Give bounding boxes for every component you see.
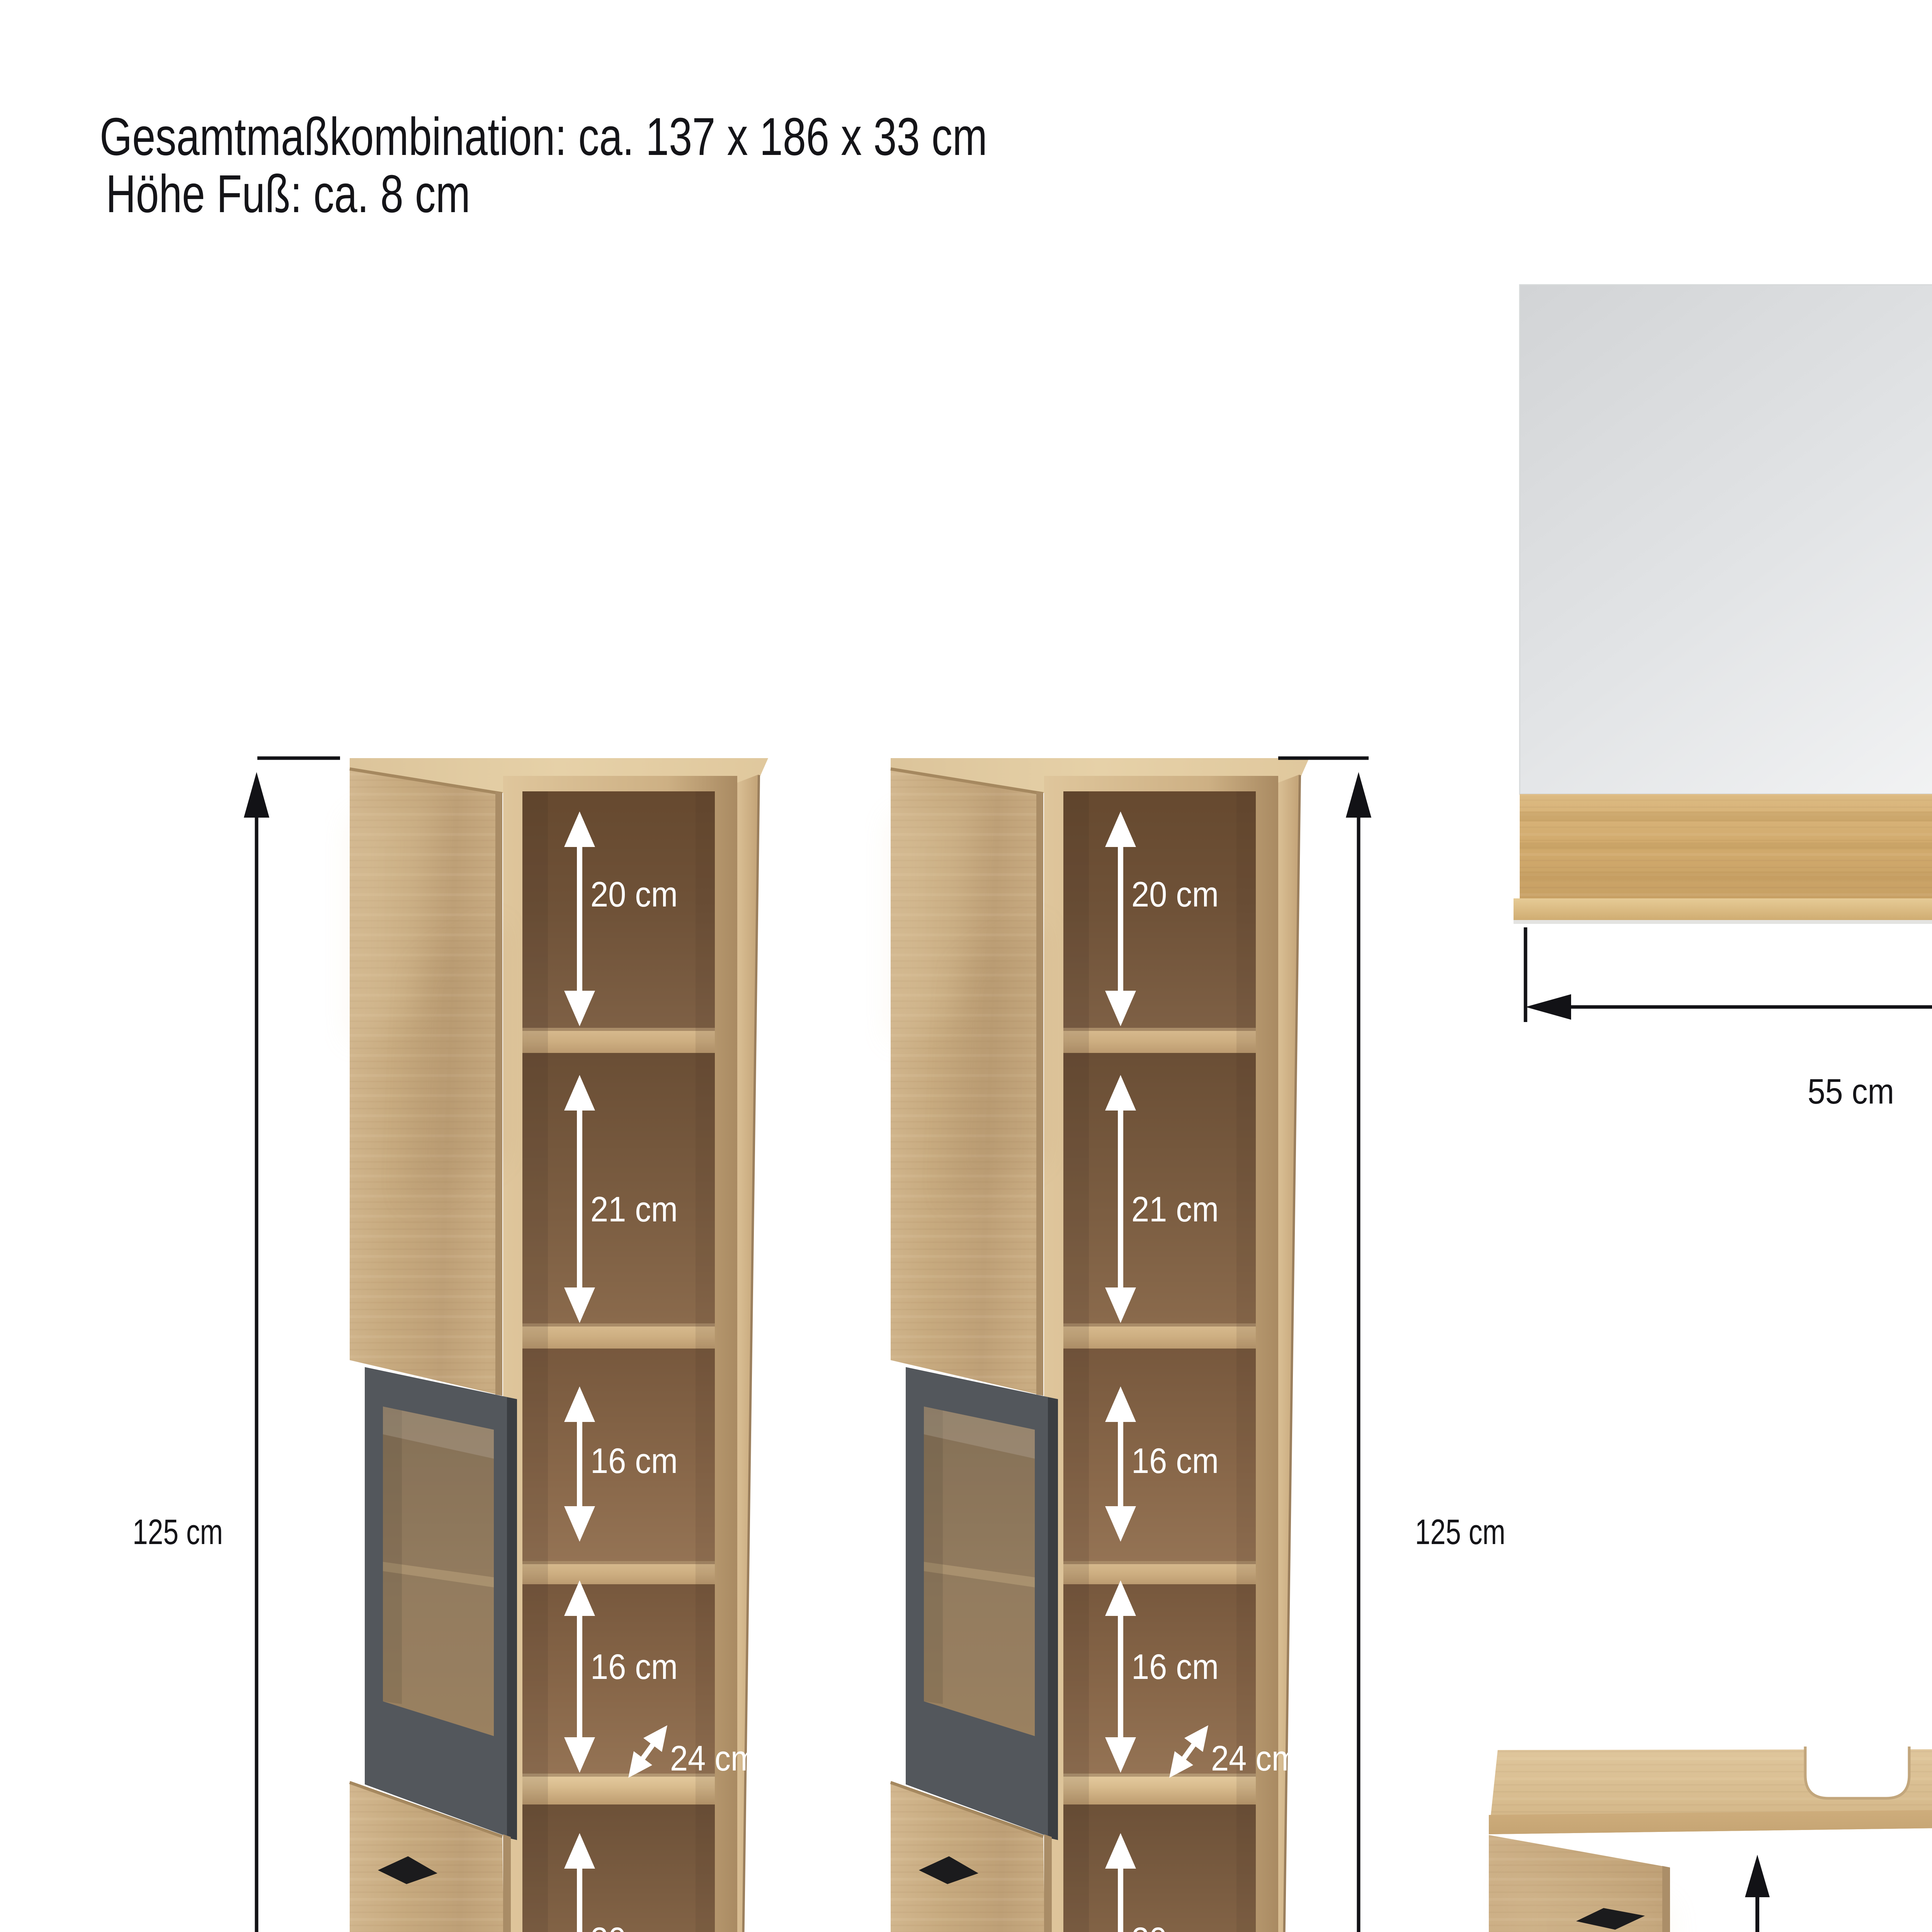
svg-text:125 cm: 125 cm [1415, 1512, 1505, 1552]
svg-text:24 cm: 24 cm [670, 1739, 757, 1778]
svg-text:16 cm: 16 cm [590, 1441, 678, 1481]
svg-text:16 cm: 16 cm [1131, 1647, 1219, 1687]
svg-text:55 cm: 55 cm [1808, 1072, 1894, 1111]
svg-text:125 cm: 125 cm [133, 1512, 223, 1552]
svg-text:20 cm: 20 cm [590, 1920, 678, 1932]
svg-text:20 cm: 20 cm [1131, 875, 1219, 914]
svg-text:Gesamtmaßkombination: ca. 137: Gesamtmaßkombination: ca. 137 x 186 x 33… [100, 107, 987, 167]
svg-text:20 cm: 20 cm [1131, 1920, 1219, 1932]
svg-text:Höhe Fuß: ca. 8 cm: Höhe Fuß: ca. 8 cm [106, 164, 470, 224]
svg-text:16 cm: 16 cm [590, 1647, 678, 1687]
svg-text:20 cm: 20 cm [590, 875, 678, 914]
svg-text:21 cm: 21 cm [1131, 1190, 1219, 1229]
svg-text:21 cm: 21 cm [590, 1190, 678, 1229]
svg-text:24 cm: 24 cm [1211, 1739, 1298, 1778]
svg-text:16 cm: 16 cm [1131, 1441, 1219, 1481]
